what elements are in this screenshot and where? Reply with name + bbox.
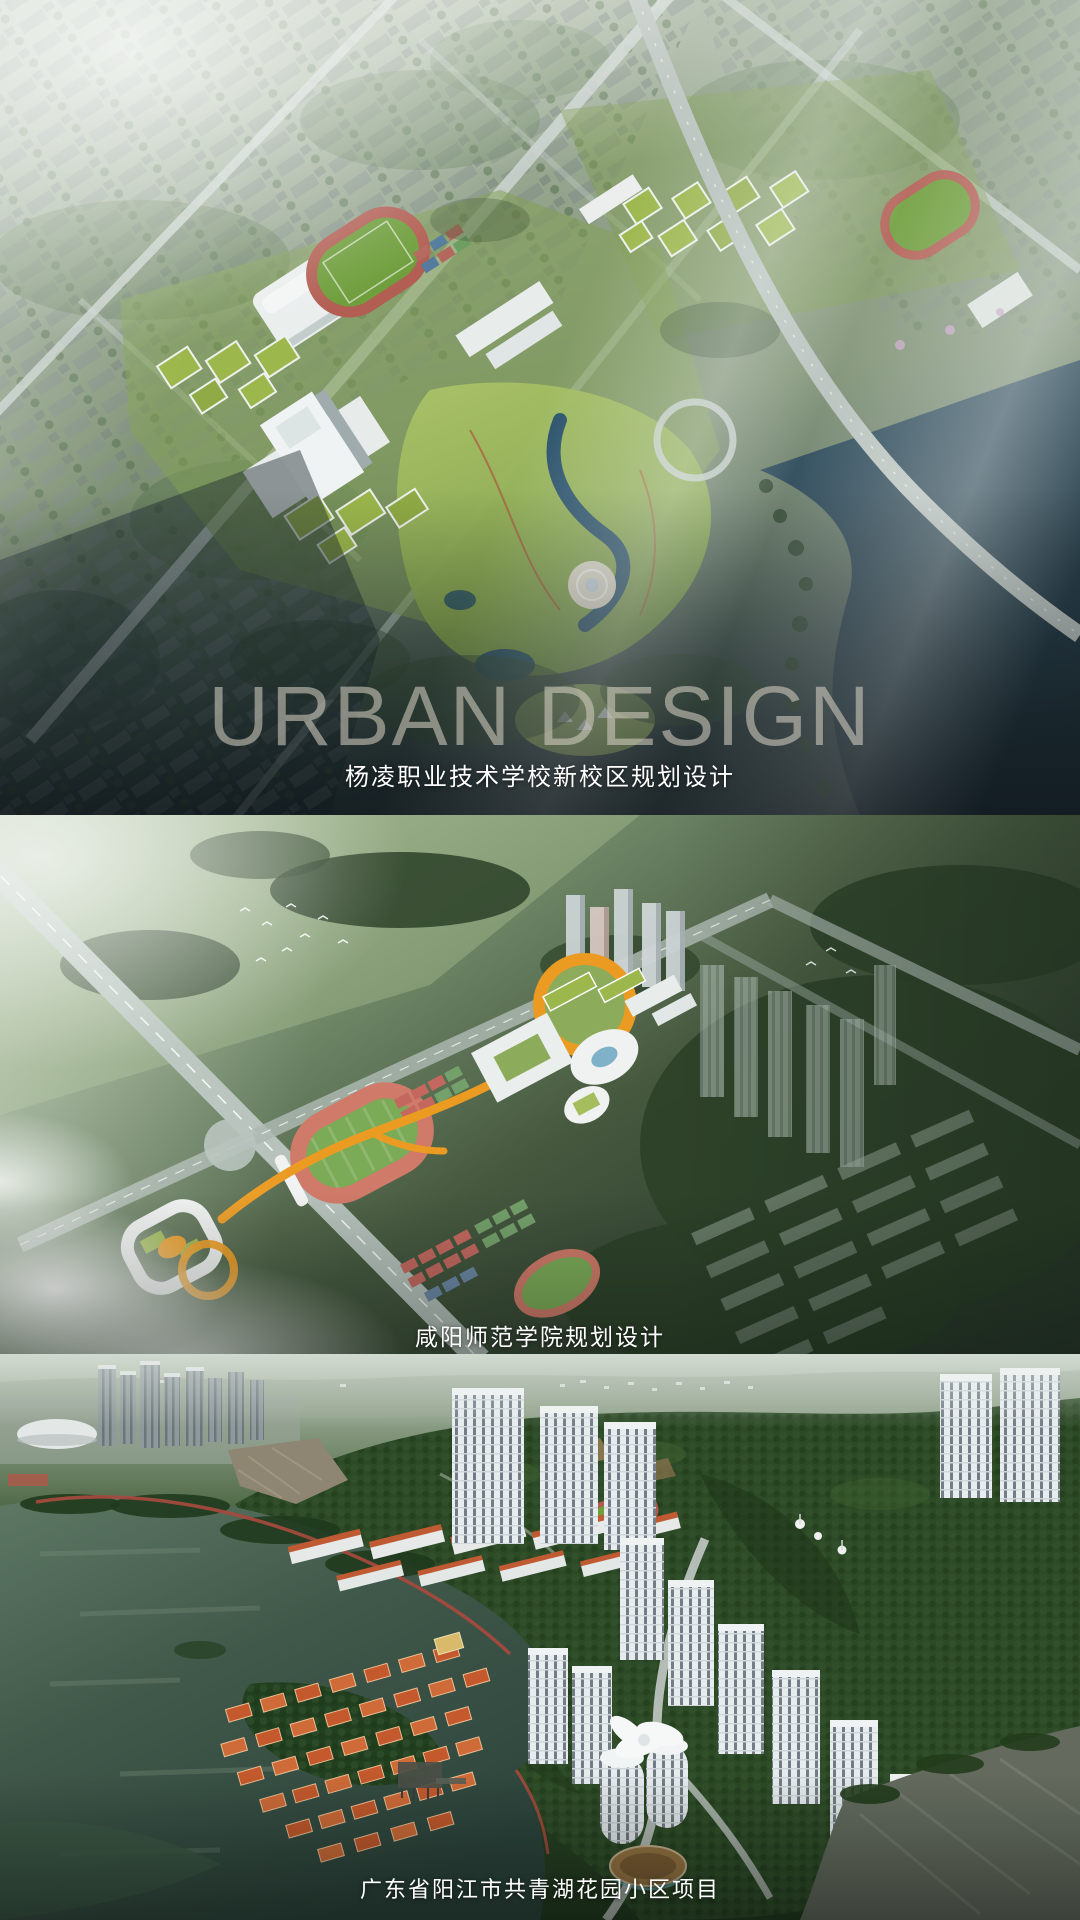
aerial-render-xianyang xyxy=(0,815,1080,1354)
poster-page: URBAN DESIGN 杨凌职业技术学校新校区规划设计 咸阳师范学院规划设计 … xyxy=(0,0,1080,1920)
caption-xianyang: 咸阳师范学院规划设计 xyxy=(0,1318,1080,1352)
render-panel-gongqinghu xyxy=(0,1354,1080,1920)
watermark-title: URBAN DESIGN xyxy=(0,674,1080,758)
caption-yangling: 杨凌职业技术学校新校区规划设计 xyxy=(0,757,1080,792)
aerial-render-gongqinghu xyxy=(0,1354,1080,1920)
render-panel-xianyang xyxy=(0,815,1080,1354)
caption-gongqinghu: 广东省阳江市共青湖花园小区项目 xyxy=(0,1872,1080,1904)
